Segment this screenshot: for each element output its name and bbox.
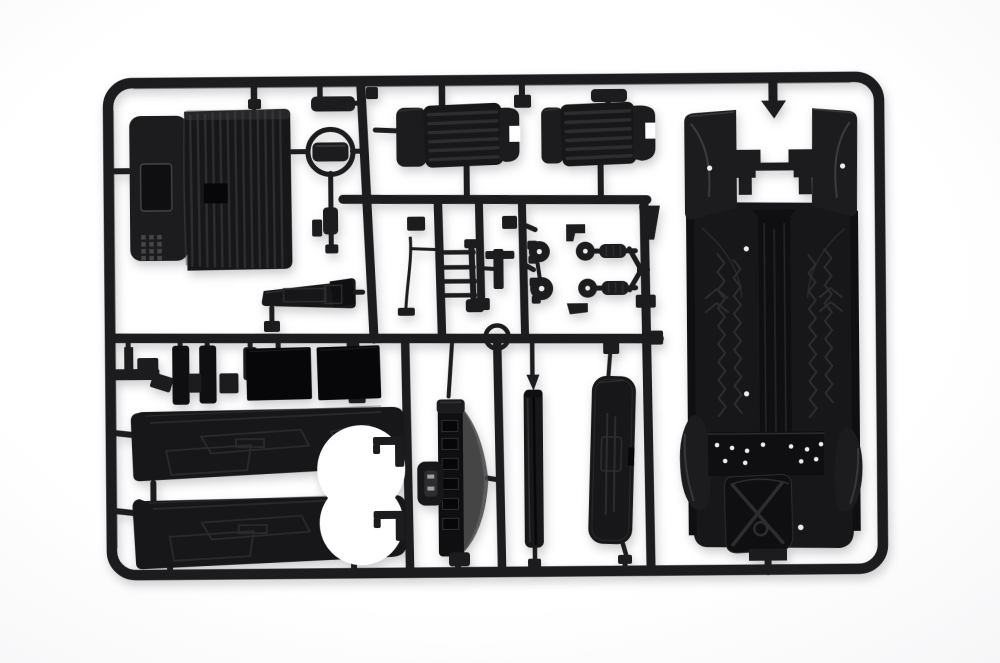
- trim-clips: [112, 345, 258, 405]
- sprue-photo-stage: Product photograph of a black injection-…: [0, 0, 1000, 663]
- t-bracket: [481, 249, 514, 289]
- flat-panel-1: [246, 347, 312, 401]
- wiper-rod: [397, 237, 436, 316]
- wheel-hub-pair: [527, 240, 553, 303]
- dashboard: [417, 399, 489, 567]
- sprue-group: [108, 77, 883, 578]
- bucket-seat-right: [541, 101, 656, 199]
- center-console-sill: [262, 278, 363, 309]
- steering-wheel: [291, 129, 361, 254]
- flat-panel-2: [316, 345, 381, 400]
- dashboard-bracket: [417, 461, 443, 505]
- sill-bar: [524, 390, 544, 548]
- door-panel-cutout-lower: [319, 481, 404, 566]
- chassis-floor-pan: [677, 108, 863, 562]
- rear-bench-seat: [129, 109, 292, 271]
- suspension-arm-assembly: [566, 224, 648, 315]
- bucket-seat-left: [375, 102, 521, 201]
- sprue-photo: Product photograph of a black injection-…: [0, 0, 1000, 663]
- cover-panel: [588, 375, 636, 544]
